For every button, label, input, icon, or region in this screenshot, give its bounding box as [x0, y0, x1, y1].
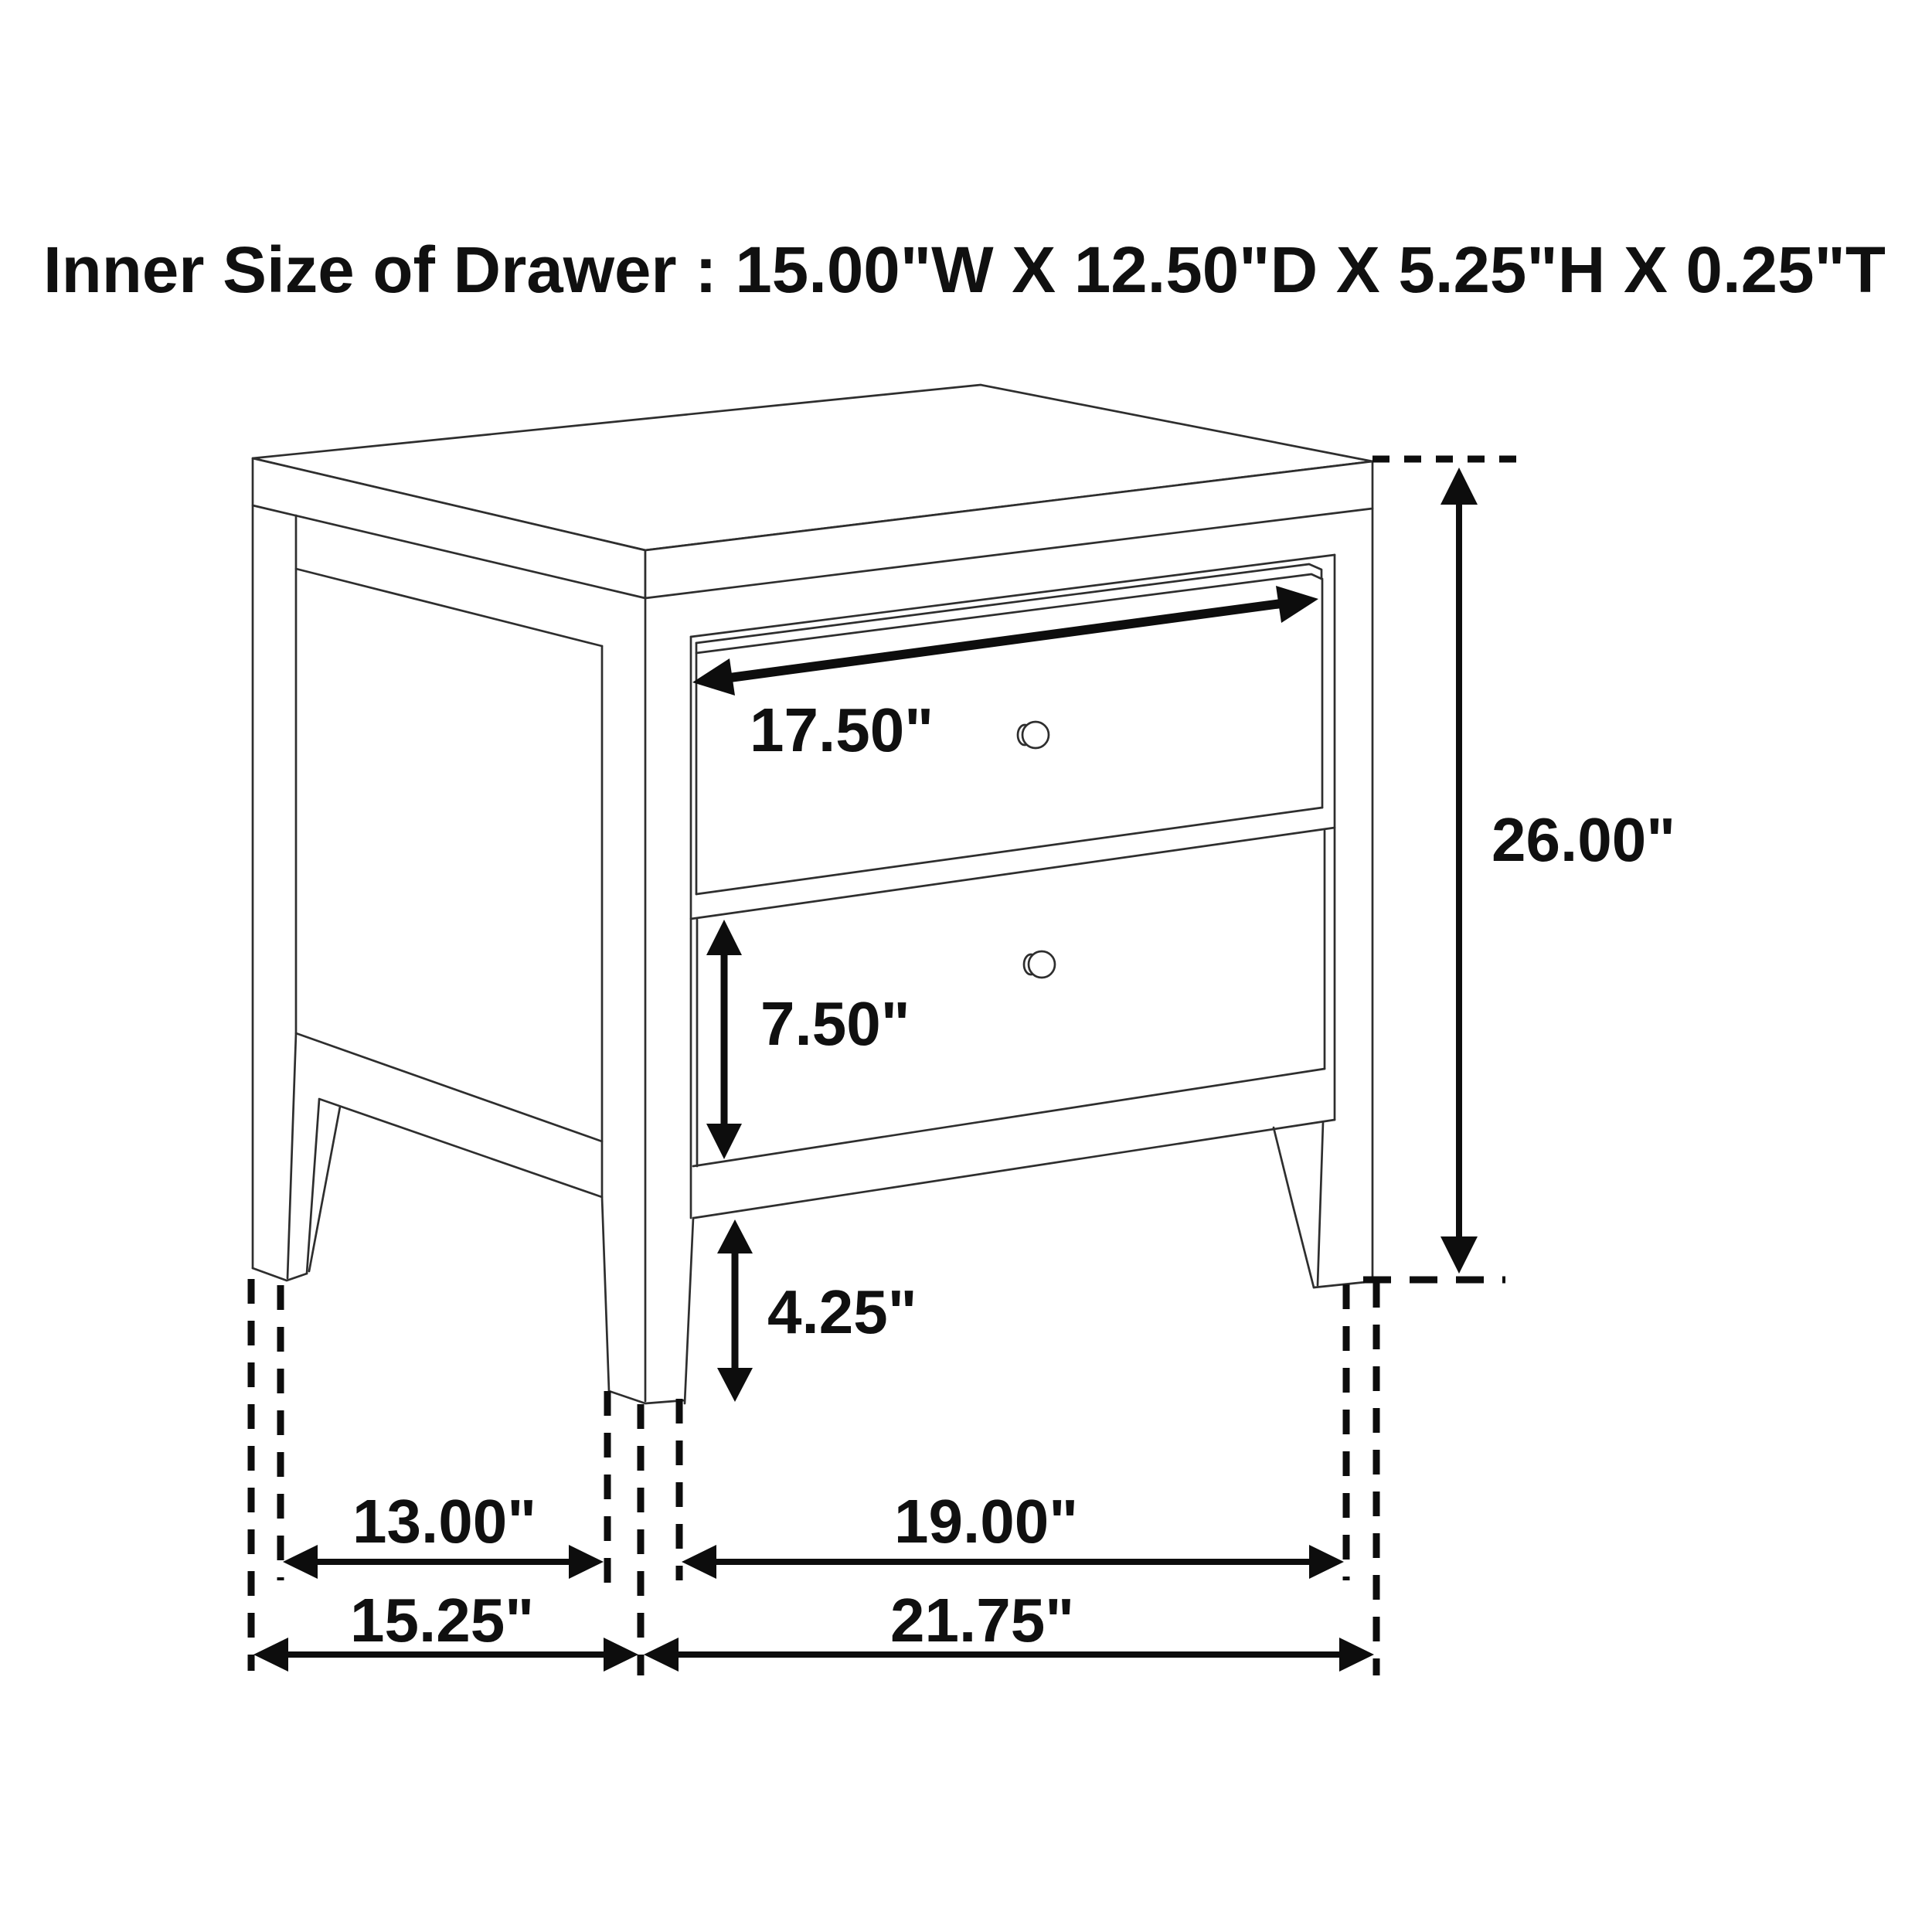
svg-text:15.25": 15.25": [350, 1586, 534, 1655]
svg-text:7.50": 7.50": [760, 989, 910, 1058]
svg-text:19.00": 19.00": [894, 1487, 1078, 1556]
svg-text:Inner Size of Drawer : 15.00"W: Inner Size of Drawer : 15.00"W X 12.50"D…: [43, 233, 1886, 306]
svg-text:21.75": 21.75": [890, 1586, 1074, 1655]
svg-text:13.00": 13.00": [352, 1487, 536, 1556]
svg-text:4.25": 4.25": [767, 1277, 917, 1346]
svg-text:26.00": 26.00": [1492, 805, 1675, 874]
svg-text:17.50": 17.50": [750, 696, 934, 764]
